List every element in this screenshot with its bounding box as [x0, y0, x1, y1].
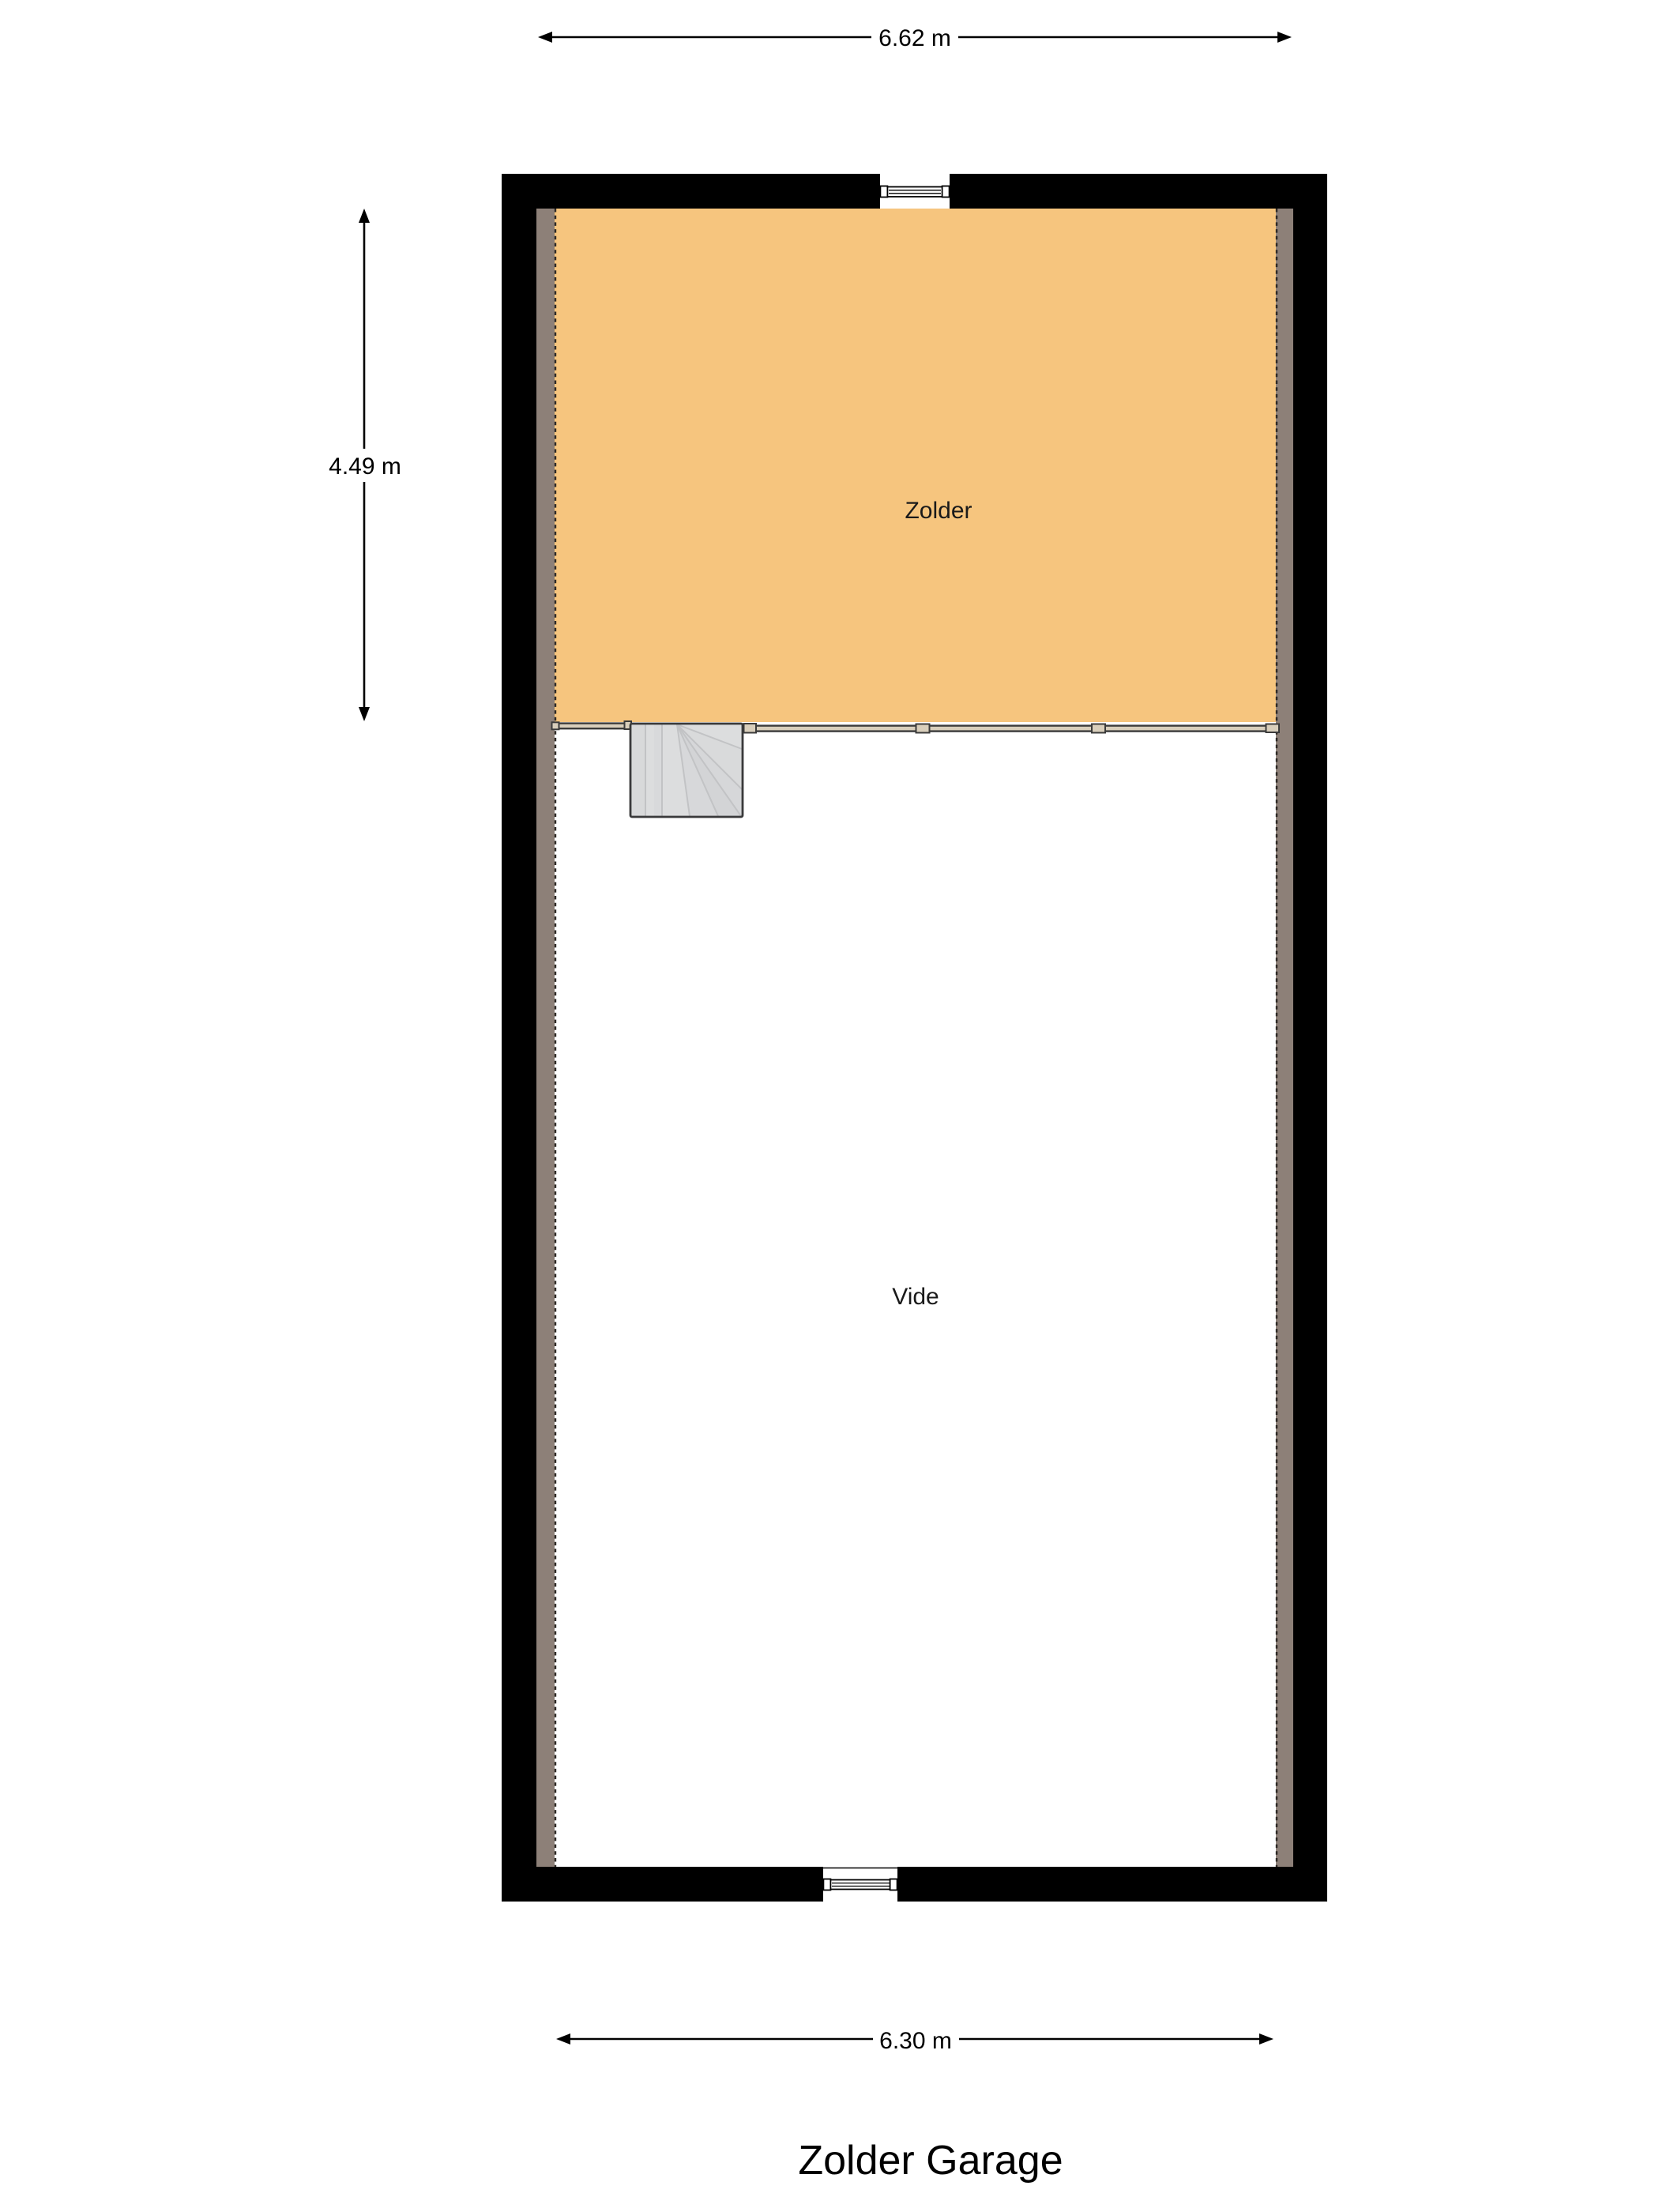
svg-text:6.62 m: 6.62 m — [878, 25, 951, 51]
svg-text:Vide: Vide — [892, 1284, 939, 1310]
svg-text:Zolder: Zolder — [905, 498, 972, 524]
svg-text:Zolder Garage: Zolder Garage — [798, 2138, 1063, 2184]
svg-text:6.30 m: 6.30 m — [879, 2028, 952, 2054]
svg-text:4.49 m: 4.49 m — [329, 453, 401, 480]
